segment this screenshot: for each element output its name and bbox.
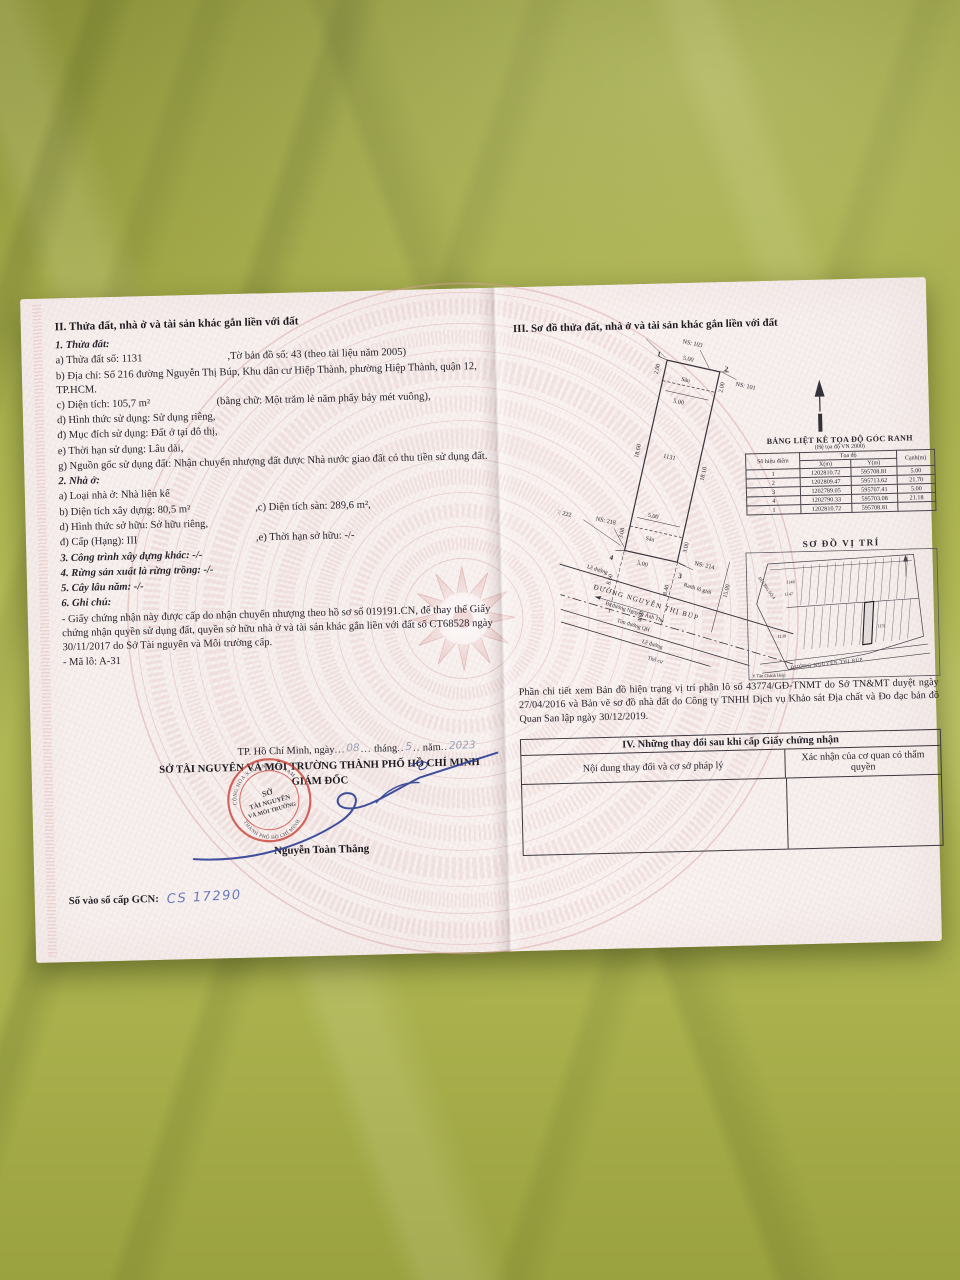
label-ns103: NS: 103 [682,338,704,349]
dim-top-500: 5.00 [682,355,694,364]
map-lot-1131-label: 1131 [877,623,886,628]
label-le-duong-1: Lề đường [586,563,609,576]
label-ns214: NS: 214 [694,560,716,571]
director-signature-ink [179,739,512,872]
section-4-col2-header: Xác nhận của cơ quan có thẩm quyền [785,746,941,778]
north-arrow-icon [811,379,828,437]
diagram-point-2: 2 [724,365,730,374]
section-2-block: II. Thửa đất, nhà ở và tài sản khác gắn … [55,310,503,672]
location-sketch-map: 1148 1147 1139 1131 ĐƯỜNG NGUYỄN THỊ BÚP… [745,548,940,681]
dim-1810: 18.10 [699,466,709,481]
map-lot-1147: 1147 [784,591,794,596]
col-edge-header: Cạnh(m) [896,449,934,466]
label-ns218: NS: 218 [595,515,617,526]
diagram-point-3: 3 [677,572,683,581]
dim-left-200: 2.00 [654,363,662,375]
dim-1860: 18.60 [633,443,643,458]
dim-san-top-500: 5.00 [673,398,685,407]
label-ns101: NS: 101 [735,381,757,392]
label-san-top: Sân [681,377,691,385]
lot-number: 1131 [662,453,676,463]
dim-bottom-500: 5.00 [636,560,648,569]
section-4-body-col1 [522,779,789,855]
location-sketch-block: SƠ ĐỒ VỊ TRÍ 1148 1147 1139 1131 [745,536,940,686]
map-lot-1148: 1148 [786,579,796,584]
left-guilloche-border [32,305,57,957]
label-ranh-lo-gioi: Ranh lộ giới [683,582,713,596]
map-lot-1139: 1139 [777,634,787,639]
label-san-bot: Sân [645,536,655,544]
dim-1500: 15.00 [723,584,732,599]
land-certificate-page: II. Thửa đất, nhà ở và tài sản khác gắn … [20,277,942,963]
dim-300: 3.00 [683,542,691,554]
map-road-left: ĐƯỜNG SỐ 4 [757,576,777,601]
photo-background: II. Thửa đất, nhà ở và tài sản khác gắn … [0,0,960,1280]
book-number-label: Số vào sổ cấp GCN: [69,894,159,907]
floor-area: ,c) Diện tích sàn: 289,6 m², [255,498,371,515]
dim-san-bot-500: 5.00 [647,512,659,521]
cell [898,501,936,511]
section-4-table: IV. Những thay đổi sau khi cấp Giấy chứn… [520,729,944,856]
label-tho-cu: Thổ cư [647,654,665,665]
col-point-header: Số hiệu điểm [746,453,801,470]
diagram-point-4: 4 [609,553,615,562]
dim-308: 3.08 [618,527,626,539]
ownership-term: ,e) Thời hạn sở hữu: -/- [256,529,355,545]
cell: 1 [747,505,802,515]
map-ward-label: P. Tân Chánh Hiệp [752,673,786,679]
dim-right-200: 2.00 [718,382,726,394]
coordinate-table-block: BẢNG LIỆT KÊ TỌA ĐỘ GÓC RANH (Hệ tọa độ … [745,433,937,516]
coordinate-table: Số hiệu điểm Tọa độ Cạnh(m) X(m) Y(m) 11… [745,449,936,516]
cell: 1202810.72 [801,503,852,513]
cell: 595708.81 [852,502,898,512]
section-4-empty-body [522,775,943,855]
handwritten-book-number: CS 17290 [166,888,242,907]
highlighted-lot-1131 [862,601,875,644]
